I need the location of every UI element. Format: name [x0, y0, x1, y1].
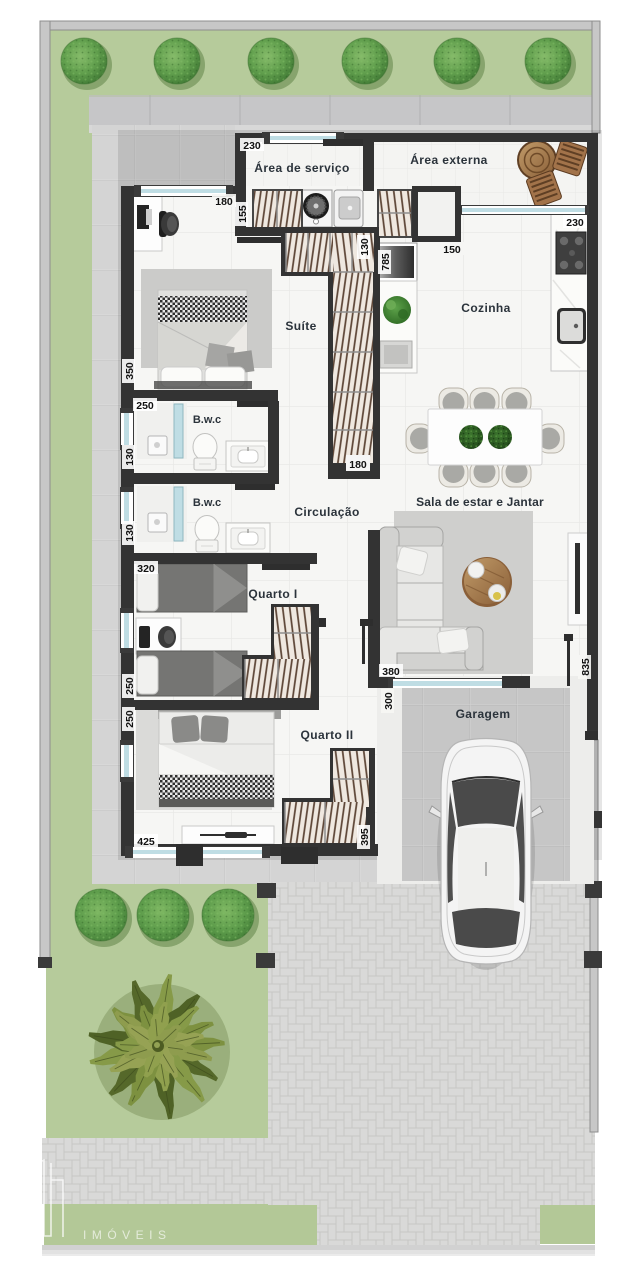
svg-text:B.w.c: B.w.c — [193, 497, 221, 509]
svg-text:Quarto II: Quarto II — [301, 728, 354, 742]
svg-text:320: 320 — [137, 563, 155, 575]
svg-text:130: 130 — [124, 524, 136, 542]
svg-text:180: 180 — [215, 196, 233, 208]
svg-text:Quarto I: Quarto I — [248, 587, 297, 601]
svg-text:785: 785 — [380, 253, 392, 271]
svg-text:835: 835 — [580, 658, 592, 676]
svg-text:150: 150 — [443, 244, 461, 256]
svg-text:B.w.c: B.w.c — [193, 414, 221, 426]
svg-text:Área de serviço: Área de serviço — [254, 160, 349, 175]
svg-text:350: 350 — [124, 362, 136, 380]
svg-text:130: 130 — [124, 448, 136, 466]
svg-text:380: 380 — [382, 666, 400, 678]
svg-text:Sala de estar e Jantar: Sala de estar e Jantar — [416, 495, 544, 509]
svg-text:Cozinha: Cozinha — [461, 301, 510, 315]
svg-text:425: 425 — [137, 836, 155, 848]
svg-text:250: 250 — [136, 400, 154, 412]
svg-text:230: 230 — [566, 217, 584, 229]
svg-text:180: 180 — [349, 459, 367, 471]
svg-text:Garagem: Garagem — [456, 707, 511, 721]
svg-text:250: 250 — [124, 677, 136, 695]
svg-text:300: 300 — [383, 692, 395, 710]
svg-text:IMÓVEIS: IMÓVEIS — [83, 1227, 172, 1242]
svg-text:130: 130 — [359, 238, 371, 256]
svg-text:250: 250 — [124, 710, 136, 728]
svg-text:Área externa: Área externa — [410, 152, 488, 167]
svg-text:230: 230 — [243, 140, 261, 152]
svg-text:395: 395 — [359, 828, 371, 846]
svg-text:155: 155 — [237, 205, 249, 223]
svg-text:Suíte: Suíte — [285, 319, 316, 333]
svg-text:Circulação: Circulação — [294, 505, 359, 519]
